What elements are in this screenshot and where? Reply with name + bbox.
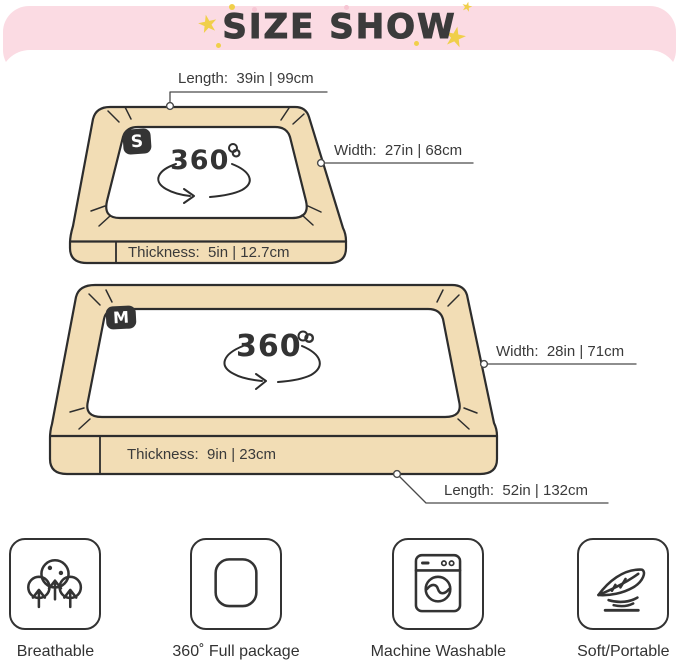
dim-length-m: Length: 52in | 132cm bbox=[444, 482, 588, 500]
feature-full-package: 360˚ Full package bbox=[172, 538, 299, 661]
bed-s-drawing bbox=[70, 92, 473, 263]
rotation-360-label: 360° bbox=[170, 145, 240, 176]
size-badge-m: M bbox=[105, 305, 136, 330]
full-package-icon bbox=[197, 545, 275, 623]
rotation-360-label: 360° bbox=[236, 329, 312, 364]
feature-soft-portable: Soft/Portable bbox=[577, 538, 670, 661]
feature-label: 360˚ Full package bbox=[172, 643, 299, 661]
feather-icon bbox=[584, 545, 662, 623]
feature-label: Soft/Portable bbox=[577, 643, 670, 661]
dim-width-s: Width: 27in | 68cm bbox=[334, 142, 462, 160]
dim-length-s: Length: 39in | 99cm bbox=[178, 70, 314, 88]
dim-thickness-s: Thickness: 5in | 12.7cm bbox=[128, 244, 289, 262]
size-show-infographic: ★ ★ ★ SIZE SHOW bbox=[0, 0, 679, 663]
bed-m-drawing bbox=[50, 285, 636, 503]
breathable-icon bbox=[16, 545, 94, 623]
size-badge-s: S bbox=[122, 128, 152, 155]
feature-breathable: Breathable bbox=[9, 538, 101, 661]
dim-width-m: Width: 28in | 71cm bbox=[496, 343, 624, 361]
feature-label: Machine Washable bbox=[371, 643, 506, 661]
dim-thickness-m: Thickness: 9in | 23cm bbox=[127, 446, 276, 464]
feature-label: Breathable bbox=[17, 643, 94, 661]
machine-washable-icon bbox=[399, 545, 477, 623]
feature-row: Breathable 360˚ Full package bbox=[0, 538, 679, 661]
feature-machine-washable: Machine Washable bbox=[371, 538, 506, 661]
